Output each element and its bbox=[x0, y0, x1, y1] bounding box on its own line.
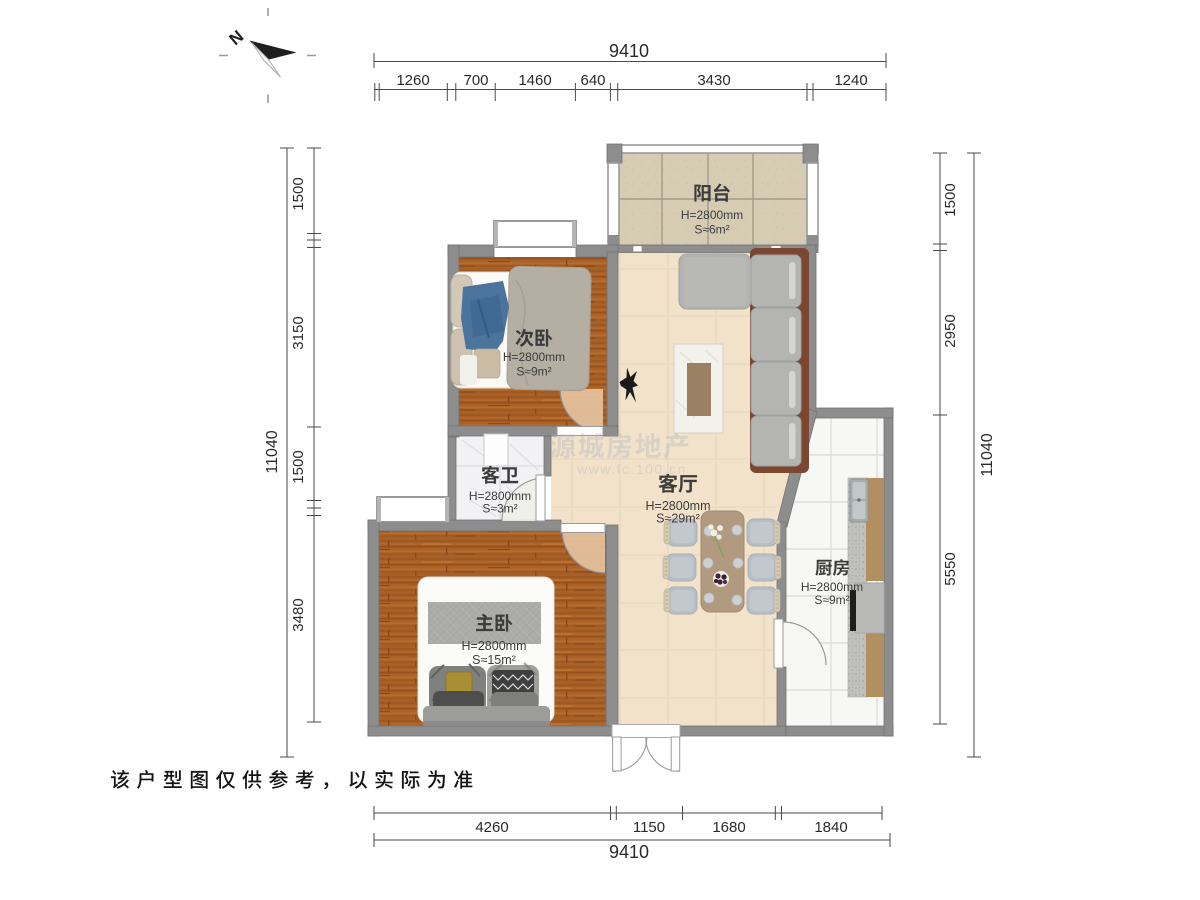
svg-text:1500: 1500 bbox=[290, 177, 307, 210]
svg-text:S≈29m²: S≈29m² bbox=[656, 512, 700, 526]
svg-text:1680: 1680 bbox=[712, 819, 745, 836]
svg-text:S≈9m²: S≈9m² bbox=[516, 365, 551, 379]
svg-text:H=2800mm: H=2800mm bbox=[681, 208, 743, 222]
svg-text:700: 700 bbox=[463, 72, 488, 89]
svg-text:3480: 3480 bbox=[290, 598, 307, 631]
svg-text:1240: 1240 bbox=[834, 72, 867, 89]
svg-text:1460: 1460 bbox=[518, 72, 551, 89]
svg-text:1500: 1500 bbox=[290, 450, 307, 483]
svg-text:1260: 1260 bbox=[396, 72, 429, 89]
svg-text:S≈6m²: S≈6m² bbox=[694, 223, 729, 237]
svg-text:9410: 9410 bbox=[609, 41, 649, 61]
svg-text:H=2800mm: H=2800mm bbox=[462, 639, 527, 653]
svg-text:S≈9m²: S≈9m² bbox=[814, 593, 849, 607]
svg-text:11040: 11040 bbox=[979, 433, 996, 476]
svg-text:www.fc.100.cn: www.fc.100.cn bbox=[576, 461, 687, 477]
svg-text:5550: 5550 bbox=[942, 552, 959, 585]
svg-text:1500: 1500 bbox=[942, 183, 959, 216]
svg-text:9410: 9410 bbox=[609, 842, 649, 862]
svg-text:S≈3m²: S≈3m² bbox=[482, 502, 517, 516]
svg-text:1840: 1840 bbox=[814, 819, 847, 836]
svg-text:2950: 2950 bbox=[942, 314, 959, 347]
svg-text:3150: 3150 bbox=[290, 316, 307, 349]
svg-text:11040: 11040 bbox=[264, 430, 281, 473]
svg-text:3430: 3430 bbox=[697, 72, 730, 89]
svg-text:S≈15m²: S≈15m² bbox=[472, 653, 516, 667]
svg-text:H=2800mm: H=2800mm bbox=[801, 580, 863, 594]
svg-text:640: 640 bbox=[580, 72, 605, 89]
svg-text:1150: 1150 bbox=[633, 819, 665, 836]
svg-text:4260: 4260 bbox=[475, 819, 508, 836]
svg-text:H=2800mm: H=2800mm bbox=[503, 350, 565, 364]
